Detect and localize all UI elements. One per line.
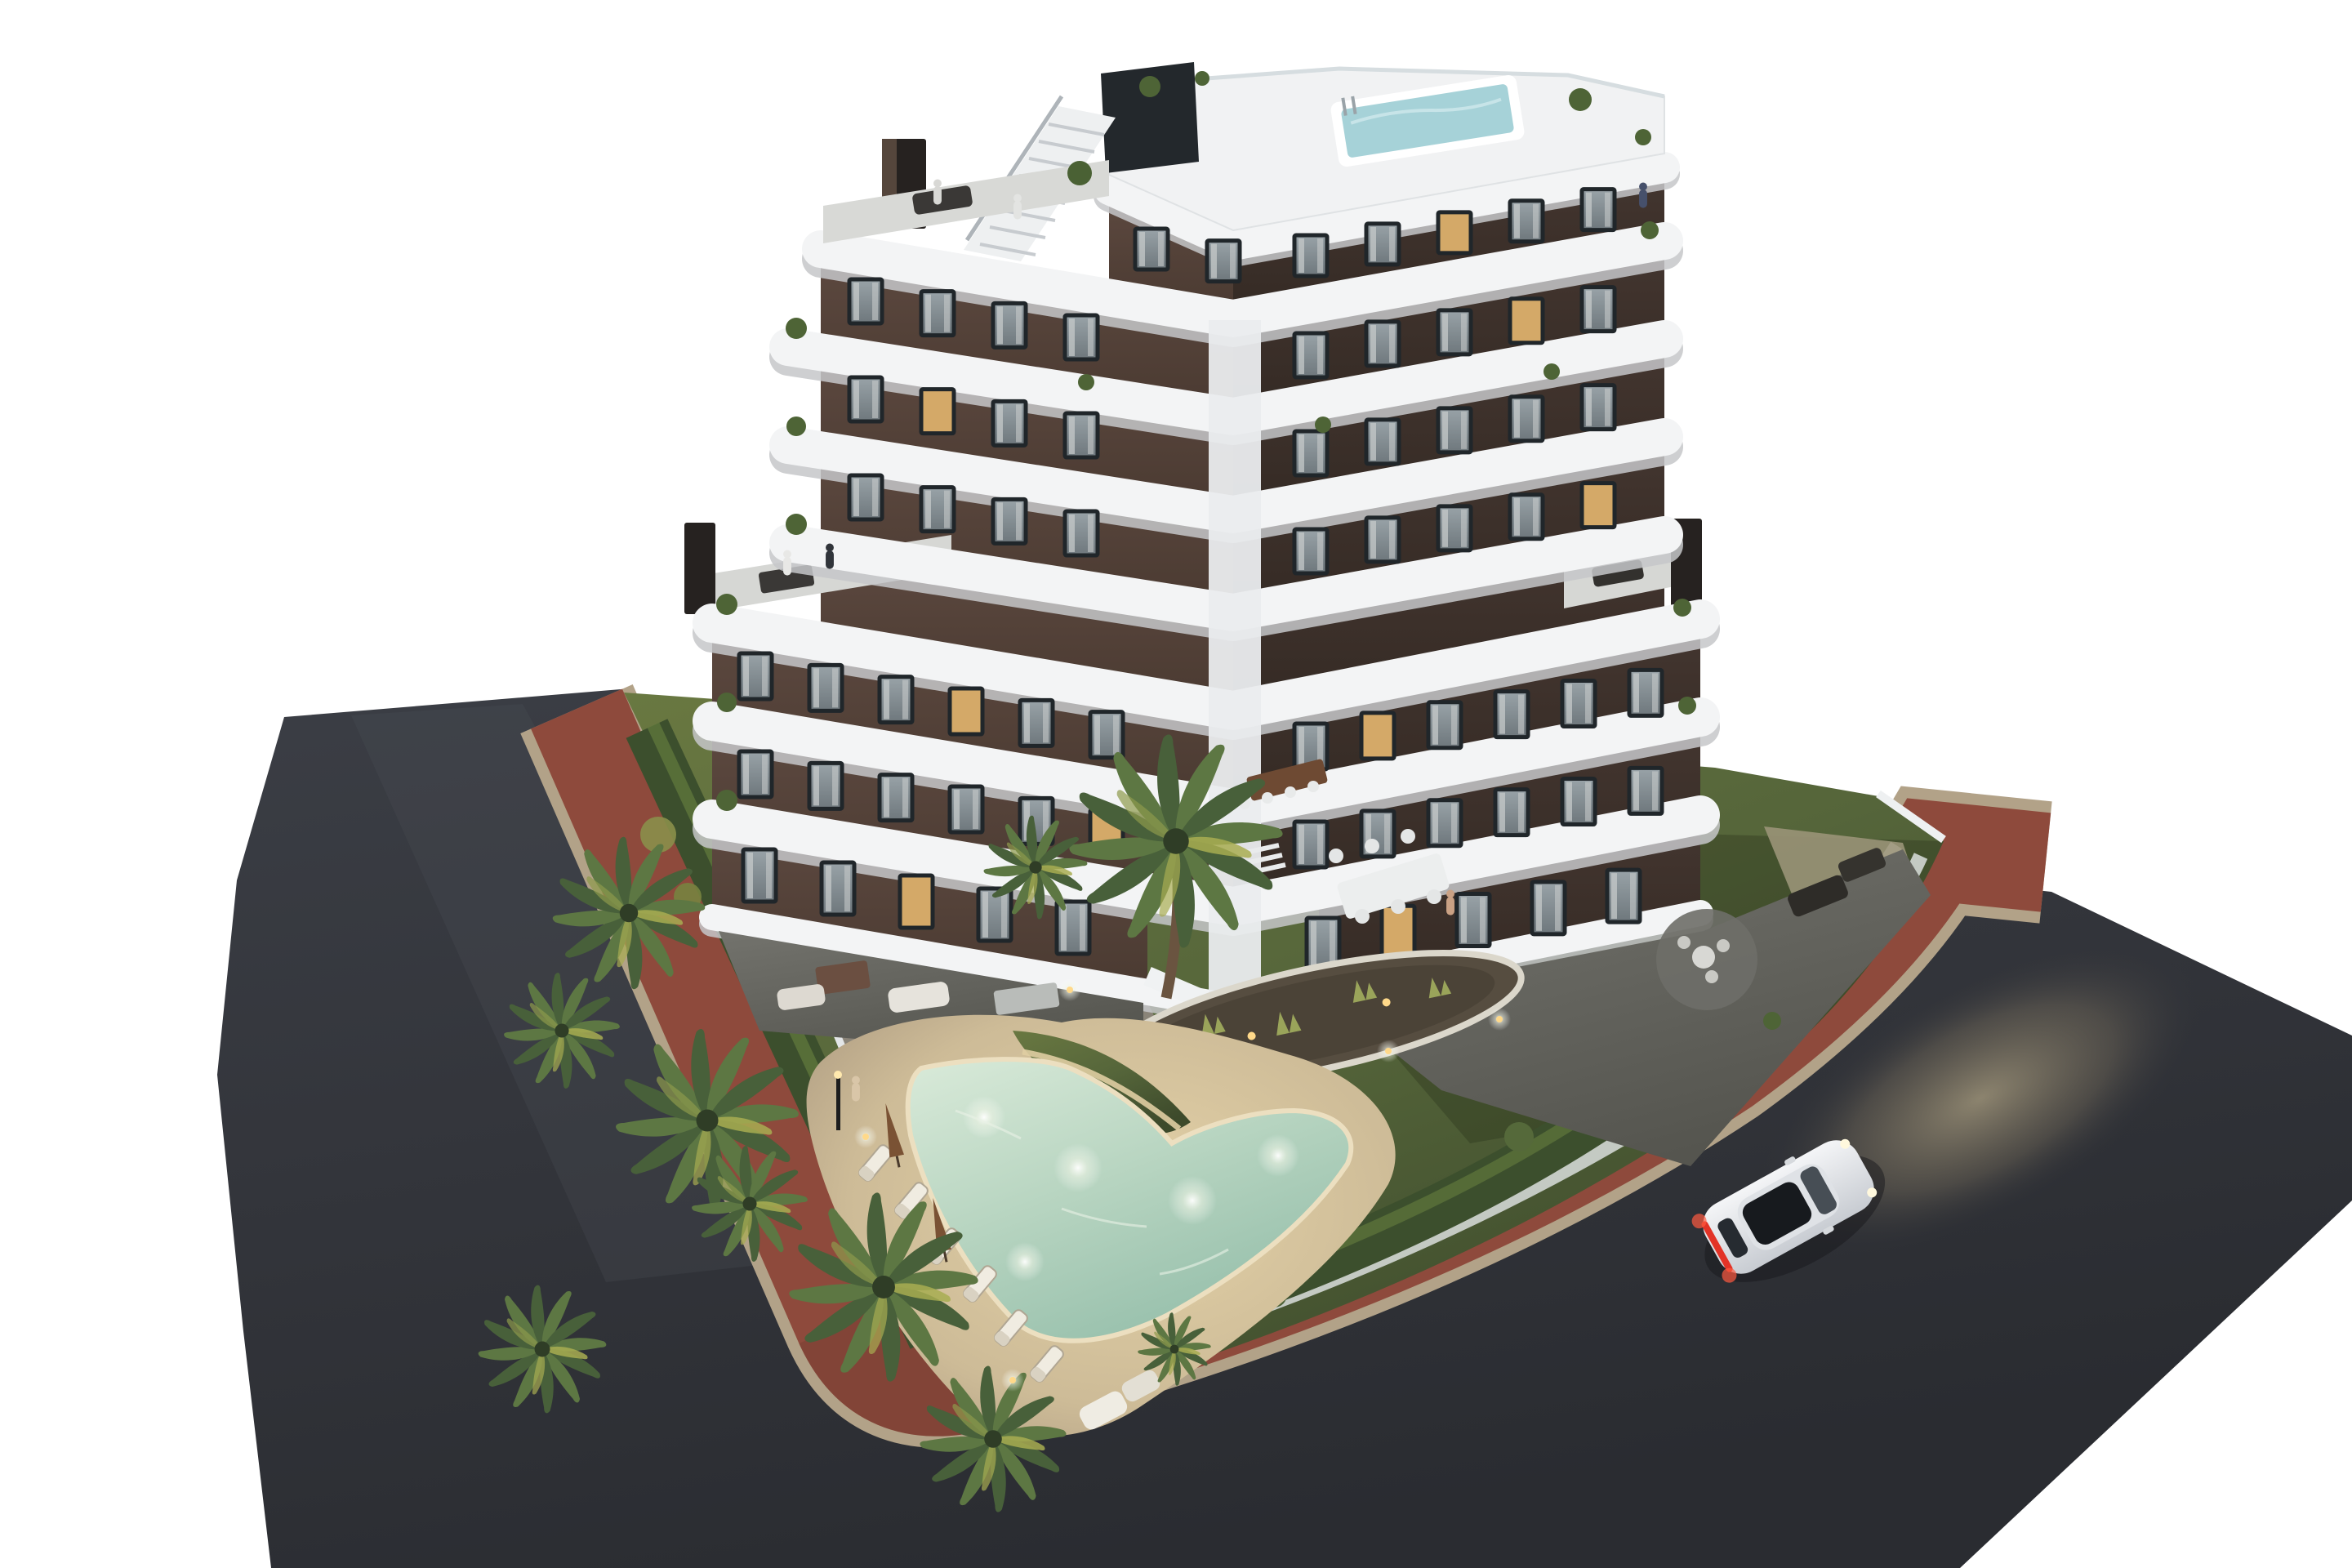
- person-figure: [783, 550, 791, 576]
- penthouse-plant: [1067, 161, 1092, 185]
- window: [1294, 333, 1327, 377]
- window: [809, 665, 842, 710]
- window: [1294, 822, 1327, 867]
- person-figure: [1013, 194, 1022, 220]
- window: [1090, 712, 1123, 758]
- window: [1294, 431, 1327, 475]
- window-lit: [1510, 299, 1543, 343]
- window: [1582, 287, 1615, 332]
- window: [809, 763, 842, 808]
- window: [1607, 870, 1640, 922]
- window: [739, 751, 772, 797]
- person-figure: [826, 544, 834, 569]
- window: [1366, 518, 1399, 562]
- window: [739, 653, 772, 699]
- render-stage: Aerial dusk 3D architectural rendering o…: [0, 0, 2352, 1568]
- window-lit: [921, 390, 954, 434]
- window: [1065, 511, 1098, 555]
- window: [993, 303, 1026, 347]
- window: [1428, 800, 1461, 846]
- window: [1057, 902, 1089, 954]
- window-lit: [1361, 713, 1394, 759]
- window: [1532, 882, 1565, 934]
- window: [1562, 779, 1595, 825]
- window: [921, 292, 954, 336]
- window: [1510, 201, 1543, 242]
- window-lit: [900, 875, 933, 928]
- window: [849, 279, 882, 323]
- window: [1438, 506, 1471, 550]
- window: [822, 862, 854, 915]
- window: [1065, 413, 1098, 457]
- bistro-table: [1692, 946, 1715, 969]
- window: [1207, 241, 1240, 282]
- window-lit: [1438, 212, 1471, 253]
- architectural-rendering: Aerial dusk 3D architectural rendering o…: [0, 0, 2352, 1568]
- window: [1582, 189, 1615, 230]
- window: [1495, 790, 1528, 835]
- window: [849, 475, 882, 519]
- person-figure: [852, 1076, 860, 1102]
- person-figure: [1639, 183, 1647, 208]
- window: [1428, 702, 1461, 748]
- window: [921, 488, 954, 532]
- garden-light: [1067, 987, 1073, 993]
- garden-light: [1009, 1377, 1016, 1383]
- window: [1562, 681, 1595, 727]
- window: [993, 499, 1026, 543]
- window-lit: [950, 688, 982, 734]
- window: [1510, 495, 1543, 539]
- window: [1366, 224, 1399, 265]
- garden-light: [1385, 1048, 1392, 1054]
- garden-light: [1496, 1016, 1503, 1022]
- window: [1495, 692, 1528, 737]
- window: [1438, 310, 1471, 354]
- window: [1366, 322, 1399, 366]
- window: [1582, 385, 1615, 430]
- window-lit: [1582, 483, 1615, 528]
- window: [1629, 768, 1662, 813]
- window: [1629, 670, 1662, 715]
- window: [880, 775, 912, 821]
- person-figure: [933, 180, 942, 205]
- window: [880, 677, 912, 723]
- window: [950, 786, 982, 832]
- person-figure: [1446, 890, 1454, 915]
- window: [1510, 397, 1543, 441]
- window: [1294, 529, 1327, 573]
- window: [1366, 420, 1399, 464]
- garden-light: [862, 1134, 869, 1140]
- window: [1438, 408, 1471, 452]
- window: [1294, 235, 1327, 276]
- pool-lamp-post: [836, 1076, 840, 1130]
- window: [1457, 894, 1490, 947]
- window: [1135, 229, 1168, 269]
- window: [743, 849, 776, 902]
- window: [849, 377, 882, 421]
- window: [1065, 315, 1098, 359]
- shrub: [1504, 1122, 1534, 1151]
- window: [993, 401, 1026, 445]
- window: [1020, 700, 1053, 746]
